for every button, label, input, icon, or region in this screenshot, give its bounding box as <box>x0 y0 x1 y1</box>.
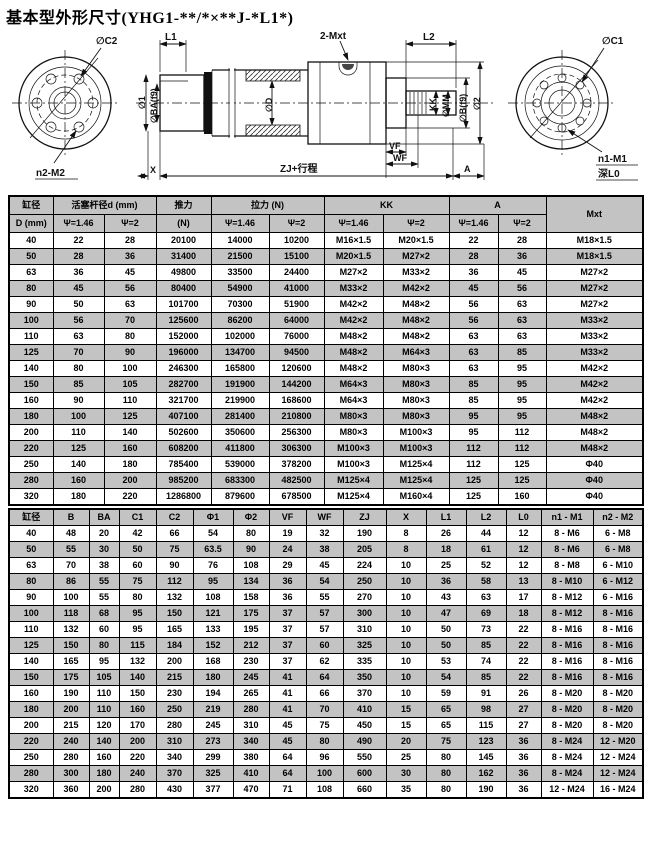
table-cell: 62 <box>306 654 343 670</box>
table-cell: 80 <box>306 734 343 750</box>
table-cell: 38 <box>306 542 343 558</box>
table-row: 3203602002804303774707110866035801903612… <box>9 782 643 799</box>
table-cell: 70 <box>53 558 89 574</box>
table-cell: 502600 <box>156 425 211 441</box>
col-psi2: Ψ=2 <box>498 215 546 233</box>
table-cell: 175 <box>53 670 89 686</box>
table-cell: 280 <box>9 766 53 782</box>
table-cell: 12 <box>506 542 541 558</box>
dimension-table: 缸径BBAC1C2Φ1Φ2VFWFZJXL1L2L0n1 - M1n2 - M2… <box>8 508 644 799</box>
table-cell: 45 <box>269 718 306 734</box>
table-cell: 36 <box>53 265 104 281</box>
table-cell: 63 <box>9 558 53 574</box>
table-cell: M48×2 <box>546 409 643 425</box>
table-row: 250140180785400539000378200M100×3M125×41… <box>9 457 643 473</box>
table-cell: 36 <box>498 249 546 265</box>
table-cell: 36 <box>104 249 156 265</box>
table-cell: 121 <box>193 606 233 622</box>
table-cell: 152000 <box>156 329 211 345</box>
table-cell: M80×3 <box>324 425 383 441</box>
table-cell: 8 <box>386 526 426 542</box>
table-cell: 125 <box>449 489 498 506</box>
table-cell: 256300 <box>269 425 324 441</box>
table-cell: 110 <box>9 329 53 345</box>
table-cell: 75 <box>156 542 193 558</box>
table-cell: M125×4 <box>383 457 449 473</box>
table-cell: 18 <box>506 606 541 622</box>
table-cell: Φ40 <box>546 473 643 489</box>
table-cell: 115 <box>119 638 156 654</box>
col-a: A <box>449 196 546 215</box>
table-cell: Φ40 <box>546 457 643 473</box>
column-header: B <box>53 509 89 526</box>
table-cell: 86200 <box>211 313 269 329</box>
table-cell: 10 <box>386 622 426 638</box>
table-cell: 6 - M8 <box>593 526 643 542</box>
table-cell: 64 <box>306 670 343 686</box>
column-header: L2 <box>466 509 506 526</box>
table-cell: 380 <box>233 750 269 766</box>
table-cell: 8 - M16 <box>593 670 643 686</box>
table-cell: 86 <box>53 574 89 590</box>
table-cell: 66 <box>306 686 343 702</box>
table-cell: M125×4 <box>324 489 383 506</box>
table-cell: 6 - M16 <box>593 590 643 606</box>
table-cell: 50 <box>426 638 466 654</box>
table-cell: 25 <box>386 750 426 766</box>
col-thrust-unit: (N) <box>156 215 211 233</box>
table-cell: 63 <box>9 265 53 281</box>
table-cell: 36 <box>269 574 306 590</box>
table-cell: 22 <box>506 670 541 686</box>
table-cell: 145 <box>466 750 506 766</box>
table-cell: 57 <box>306 622 343 638</box>
table-cell: 125600 <box>156 313 211 329</box>
table-cell: M42×2 <box>546 393 643 409</box>
table-row: 16090110321700219900168600M64×3M80×38595… <box>9 393 643 409</box>
table-cell: 63 <box>498 297 546 313</box>
table-cell: 37 <box>269 654 306 670</box>
table-cell: M42×2 <box>546 361 643 377</box>
col-psi2: Ψ=2 <box>104 215 156 233</box>
table-cell: 44 <box>466 526 506 542</box>
table-cell: 280 <box>233 702 269 718</box>
table-cell: 325 <box>193 766 233 782</box>
table-cell: 160 <box>9 393 53 409</box>
table-cell: 265 <box>233 686 269 702</box>
table-cell: M27×2 <box>324 265 383 281</box>
table-cell: 61 <box>466 542 506 558</box>
table-cell: 550 <box>343 750 386 766</box>
table-cell: 165 <box>53 654 89 670</box>
table-row: 1802001101602502192804170410156598278 - … <box>9 702 643 718</box>
table-cell: 30 <box>386 766 426 782</box>
table-cell: 168600 <box>269 393 324 409</box>
table-cell: M100×3 <box>324 457 383 473</box>
table-cell: 200 <box>89 782 119 799</box>
col-bore-unit: D (mm) <box>9 215 53 233</box>
dim-label-wf: WF <box>393 153 407 163</box>
dim-label-n2-m2: n2-M2 <box>36 168 65 179</box>
table-cell: 407100 <box>156 409 211 425</box>
table-cell: 194 <box>193 686 233 702</box>
table-cell: 17 <box>506 590 541 606</box>
table-row: 20021512017028024531045754501565115278 -… <box>9 718 643 734</box>
table-cell: 132 <box>156 590 193 606</box>
table-cell: 35 <box>386 782 426 799</box>
table-cell: 200 <box>104 473 156 489</box>
table-row: 280300180240370325410641006003080162368 … <box>9 766 643 782</box>
table-cell: M100×3 <box>383 425 449 441</box>
cylinder-side-view: L1 ∅1 ∅BA(f9) ∅D <box>136 31 494 180</box>
table-cell: 150 <box>9 670 53 686</box>
table-row: 14080100246300165800120600M48×2M80×36395… <box>9 361 643 377</box>
table-cell: 160 <box>89 750 119 766</box>
dim-label-n1-m1: n1-M1 <box>598 154 627 165</box>
table-cell: 125 <box>449 473 498 489</box>
table-cell: 45 <box>498 265 546 281</box>
table-cell: M33×2 <box>546 313 643 329</box>
column-header: VF <box>269 509 306 526</box>
table-cell: M33×2 <box>546 329 643 345</box>
table-cell: M42×2 <box>546 377 643 393</box>
table-cell: 28 <box>498 233 546 249</box>
dim-label-l2: L2 <box>423 32 435 43</box>
table-cell: 310 <box>156 734 193 750</box>
table-cell: 125 <box>9 345 53 361</box>
table-cell: 27 <box>506 718 541 734</box>
table-cell: 200 <box>53 702 89 718</box>
table-cell: 220 <box>9 441 53 457</box>
table-cell: 70 <box>53 345 104 361</box>
table-cell: 660 <box>343 782 386 799</box>
table-cell: 64 <box>269 766 306 782</box>
table-cell: 40 <box>9 526 53 542</box>
table-cell: M27×2 <box>546 297 643 313</box>
column-header: C2 <box>156 509 193 526</box>
force-thread-table: 缸径 活塞杆径d (mm) 推力 拉力 (N) KK A Mxt D (mm) … <box>8 195 644 506</box>
column-header: n2 - M2 <box>593 509 643 526</box>
table-cell: 95 <box>498 361 546 377</box>
table-cell: 132 <box>53 622 89 638</box>
table-cell: 10 <box>386 574 426 590</box>
table-cell: 112 <box>498 425 546 441</box>
table-cell: 70 <box>306 702 343 718</box>
table-cell: 13 <box>506 574 541 590</box>
table-cell: 108 <box>193 590 233 606</box>
table-cell: 85 <box>498 345 546 361</box>
table-cell: 8 - M16 <box>593 638 643 654</box>
table-cell: 8 - M20 <box>541 686 593 702</box>
table-cell: 370 <box>343 686 386 702</box>
table-cell: 132 <box>119 654 156 670</box>
table-cell: 125 <box>9 638 53 654</box>
table-cell: 80 <box>426 750 466 766</box>
table-cell: 300 <box>343 606 386 622</box>
table-cell: 60 <box>306 638 343 654</box>
table-cell: 54 <box>306 574 343 590</box>
table-cell: 63 <box>449 345 498 361</box>
table-cell: Φ40 <box>546 489 643 506</box>
table-cell: 49800 <box>156 265 211 281</box>
table-cell: 8 - M16 <box>541 622 593 638</box>
table-cell: 64000 <box>269 313 324 329</box>
table-cell: 85 <box>449 393 498 409</box>
table-cell: 45 <box>53 281 104 297</box>
table-cell: 10200 <box>269 233 324 249</box>
table-cell: 180 <box>53 489 104 506</box>
table-cell: 36 <box>506 766 541 782</box>
table-cell: 50 <box>9 249 53 265</box>
table-cell: 212 <box>233 638 269 654</box>
table-cell: 125 <box>498 473 546 489</box>
table-cell: 205 <box>343 542 386 558</box>
table-row: 11013260951651331953757310105073228 - M1… <box>9 622 643 638</box>
table-cell: M18×1.5 <box>546 249 643 265</box>
table-cell: 340 <box>233 734 269 750</box>
table-cell: 200 <box>119 734 156 750</box>
table-cell: 56 <box>53 313 104 329</box>
table-cell: 76 <box>193 558 233 574</box>
table-cell: 100 <box>104 361 156 377</box>
table-cell: 175 <box>233 606 269 622</box>
table-cell: 8 - M20 <box>541 718 593 734</box>
table-cell: 180 <box>104 457 156 473</box>
table-row: 3201802201286800879600678500M125×4M160×4… <box>9 489 643 506</box>
table-cell: 8 - M24 <box>541 750 593 766</box>
table-cell: 58 <box>466 574 506 590</box>
table-cell: 10 <box>386 670 426 686</box>
table-cell: 133 <box>193 622 233 638</box>
force-thread-table-body: 402228201001400010200M16×1.5M20×1.52228M… <box>9 233 643 506</box>
table-cell: 12 - M24 <box>593 766 643 782</box>
table-cell: 8 - M24 <box>541 734 593 750</box>
table-cell: 160 <box>498 489 546 506</box>
table-cell: M80×3 <box>383 409 449 425</box>
table-cell: 36 <box>426 574 466 590</box>
table-cell: 45 <box>306 558 343 574</box>
table-cell: 310 <box>233 718 269 734</box>
table-cell: 10 <box>386 638 426 654</box>
table-cell: 140 <box>104 425 156 441</box>
table-cell: M80×3 <box>383 361 449 377</box>
table-cell: 8 - M20 <box>593 718 643 734</box>
table-cell: 450 <box>343 718 386 734</box>
table-cell: 42 <box>119 526 156 542</box>
table-cell: 224 <box>343 558 386 574</box>
table-cell: 70300 <box>211 297 269 313</box>
table-cell: M48×2 <box>324 329 383 345</box>
table-cell: 37 <box>269 606 306 622</box>
table-cell: 45 <box>449 281 498 297</box>
table-cell: 100 <box>53 590 89 606</box>
table-row: 15085105282700191900144200M64×3M80×38595… <box>9 377 643 393</box>
table-cell: 168 <box>193 654 233 670</box>
table-cell: 63 <box>104 297 156 313</box>
table-cell: 25 <box>426 558 466 574</box>
table-cell: 22 <box>53 233 104 249</box>
table-cell: 98 <box>466 702 506 718</box>
table-row: 125150801151841522123760325105085228 - M… <box>9 638 643 654</box>
table-cell: 8 - M16 <box>541 670 593 686</box>
table-cell: 158 <box>233 590 269 606</box>
dim-label-zj: ZJ+行程 <box>280 162 318 175</box>
table-cell: 63 <box>498 313 546 329</box>
table-cell: 105 <box>104 377 156 393</box>
dim-label-ba: ∅BA(f9) <box>149 88 159 123</box>
table-cell: M64×3 <box>383 345 449 361</box>
table-cell: 28 <box>104 233 156 249</box>
table-cell: 8 - M20 <box>593 686 643 702</box>
table-cell: 30 <box>89 542 119 558</box>
table-row: 804556804005490041000M33×2M42×24556M27×2 <box>9 281 643 297</box>
table-cell: 63 <box>449 361 498 377</box>
col-psi2: Ψ=2 <box>383 215 449 233</box>
table-cell: 36 <box>269 590 306 606</box>
table-cell: 160 <box>9 686 53 702</box>
col-rod-dia: 活塞杆径d (mm) <box>53 196 156 215</box>
dim-label-mm: ∅MM <box>441 94 451 117</box>
table-cell: 41 <box>269 670 306 686</box>
table-cell: 282700 <box>156 377 211 393</box>
table-cell: 8 - M16 <box>541 654 593 670</box>
table-cell: 200 <box>156 654 193 670</box>
table-cell: 280 <box>119 782 156 799</box>
table-cell: M16×1.5 <box>324 233 383 249</box>
table-cell: 200 <box>9 718 53 734</box>
table-cell: 27 <box>506 702 541 718</box>
table-cell: 15100 <box>269 249 324 265</box>
table-cell: 95 <box>193 574 233 590</box>
table-cell: 41000 <box>269 281 324 297</box>
table-cell: 64 <box>269 750 306 766</box>
table-cell: 95 <box>89 654 119 670</box>
table-cell: 47 <box>426 606 466 622</box>
table-cell: 240 <box>119 766 156 782</box>
table-cell: 26 <box>506 686 541 702</box>
col-mxt: Mxt <box>546 196 643 233</box>
table-cell: 230 <box>156 686 193 702</box>
table-cell: 482500 <box>269 473 324 489</box>
table-cell: 52 <box>466 558 506 574</box>
table-cell: 6 - M12 <box>593 574 643 590</box>
table-cell: M100×3 <box>324 441 383 457</box>
table-cell: 80 <box>426 766 466 782</box>
datasheet-page: 基本型外形尺寸(YHG1-**/*×**J-*L1*) <box>0 0 650 849</box>
table-cell: M125×4 <box>324 473 383 489</box>
col-thrust: 推力 <box>156 196 211 215</box>
table-row: 280160200985200683300482500M125×4M125×41… <box>9 473 643 489</box>
table-cell: 68 <box>89 606 119 622</box>
table-cell: 8 - M16 <box>593 654 643 670</box>
table-cell: 180 <box>193 670 233 686</box>
table-cell: 63 <box>449 329 498 345</box>
table-row: 9050631017007030051900M42×2M48×25663M27×… <box>9 297 643 313</box>
table-cell: 134700 <box>211 345 269 361</box>
table-cell: 22 <box>449 233 498 249</box>
technical-drawing: ∅C2 n2-M2 L1 ∅1 ∅BA(f9) <box>8 28 642 193</box>
dim-label-l0: 深L0 <box>598 167 620 180</box>
table-cell: M33×2 <box>324 281 383 297</box>
table-cell: 57 <box>306 606 343 622</box>
table-cell: 54 <box>426 670 466 686</box>
table-cell: 112 <box>156 574 193 590</box>
column-header: X <box>386 509 426 526</box>
col-bore: 缸径 <box>9 196 53 215</box>
table-cell: 26 <box>426 526 466 542</box>
col-psi1: Ψ=1.46 <box>449 215 498 233</box>
table-cell: 38 <box>89 558 119 574</box>
table-cell: M64×3 <box>324 393 383 409</box>
table-cell: 22 <box>506 622 541 638</box>
table-cell: 90 <box>53 393 104 409</box>
table-cell: 28 <box>449 249 498 265</box>
table-cell: 12 - M20 <box>593 734 643 750</box>
table-cell: 80 <box>89 638 119 654</box>
table-cell: 22 <box>506 654 541 670</box>
table-cell: 150 <box>156 606 193 622</box>
table-cell: 63 <box>53 329 104 345</box>
table-cell: 95 <box>498 393 546 409</box>
table-cell: 280 <box>9 473 53 489</box>
table-cell: 90 <box>156 558 193 574</box>
table-cell: 18 <box>426 542 466 558</box>
table-cell: 678500 <box>269 489 324 506</box>
table-cell: 63 <box>466 590 506 606</box>
table-cell: 31400 <box>156 249 211 265</box>
table-cell: 95 <box>449 409 498 425</box>
front-flange-view: ∅C1 n1-M1 深L0 <box>508 36 638 180</box>
table-cell: 120600 <box>269 361 324 377</box>
table-cell: 80 <box>9 281 53 297</box>
table-cell: 340 <box>156 750 193 766</box>
table-cell: 90 <box>104 345 156 361</box>
table-cell: 8 - M12 <box>541 606 593 622</box>
table-cell: 120 <box>89 718 119 734</box>
table-cell: 100 <box>9 606 53 622</box>
table-cell: 110 <box>89 702 119 718</box>
table-row: 1601901101502301942654166370105991268 - … <box>9 686 643 702</box>
col-pull: 拉力 (N) <box>211 196 324 215</box>
force-thread-table-header: 缸径 活塞杆径d (mm) 推力 拉力 (N) KK A Mxt D (mm) … <box>9 196 643 233</box>
table-cell: 112 <box>449 457 498 473</box>
table-row: 22024014020031027334045804902075123368 -… <box>9 734 643 750</box>
table-cell: M33×2 <box>546 345 643 361</box>
table-cell: M48×2 <box>546 425 643 441</box>
table-cell: 45 <box>269 734 306 750</box>
table-cell: 280 <box>53 750 89 766</box>
table-cell: 6 - M10 <box>593 558 643 574</box>
table-cell: M27×2 <box>546 265 643 281</box>
table-row: 10056701256008620064000M42×2M48×25663M33… <box>9 313 643 329</box>
table-cell: 41 <box>269 702 306 718</box>
table-cell: 8 - M12 <box>541 590 593 606</box>
dimension-table-header: 缸径BBAC1C2Φ1Φ2VFWFZJXL1L2L0n1 - M1n2 - M2 <box>9 509 643 526</box>
table-cell: 54900 <box>211 281 269 297</box>
table-cell: 101700 <box>156 297 211 313</box>
table-cell: 134 <box>233 574 269 590</box>
dim-label-b: ∅B(f9) <box>458 94 468 122</box>
table-cell: 91 <box>466 686 506 702</box>
table-cell: 28 <box>53 249 104 265</box>
table-cell: M64×3 <box>324 377 383 393</box>
table-cell: 8 - M20 <box>593 702 643 718</box>
table-cell: 170 <box>119 718 156 734</box>
table-cell: 8 - M20 <box>541 702 593 718</box>
table-cell: 65 <box>426 702 466 718</box>
table-cell: 879600 <box>211 489 269 506</box>
table-cell: 196000 <box>156 345 211 361</box>
